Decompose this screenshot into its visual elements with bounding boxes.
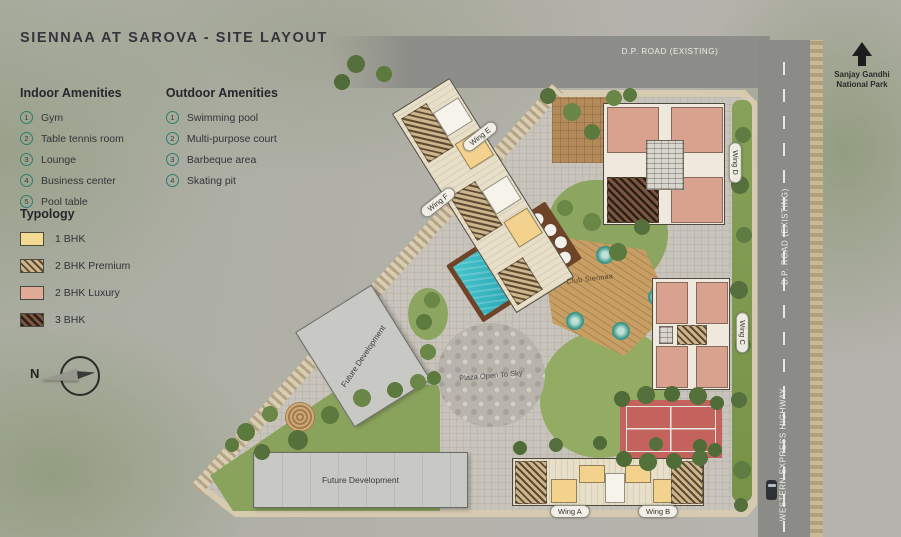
swatch-2bhk-premium <box>20 259 44 273</box>
list-item: 2Table tennis room <box>20 132 124 145</box>
amenities-legend: Indoor Amenities 1Gym 2Table tennis room… <box>20 86 278 216</box>
court-lines <box>626 406 716 452</box>
list-item: 1Swimming pool <box>166 111 278 124</box>
list-item: 2Multi-purpose court <box>166 132 278 145</box>
wing-d-label: Wing D <box>729 142 742 183</box>
number-badge: 1 <box>166 111 179 124</box>
unit-2bhk-luxury <box>696 282 728 324</box>
typology-row: 2 BHK Premium <box>20 259 130 273</box>
indoor-amenities: Indoor Amenities 1Gym 2Table tennis room… <box>20 86 124 216</box>
multi-purpose-court <box>620 400 722 458</box>
swatch-3bhk <box>20 313 44 327</box>
north-arrow-stem <box>858 56 866 66</box>
amenity-label: Pool table <box>41 196 88 208</box>
list-item: 3Lounge <box>20 153 124 166</box>
amenity-label: Table tennis room <box>41 133 124 145</box>
unit-2bhk-premium <box>677 325 707 345</box>
indoor-amenities-list: 1Gym 2Table tennis room 3Lounge 4Busines… <box>20 111 124 208</box>
umbrella-icon <box>596 246 614 264</box>
compass-needle-east <box>77 369 96 379</box>
typology-label: 3 BHK <box>55 314 85 326</box>
compass-needle-icon <box>24 344 117 413</box>
amenity-label: Gym <box>41 112 63 124</box>
outdoor-amenities-heading: Outdoor Amenities <box>166 86 278 100</box>
north-arrow-icon <box>852 42 872 56</box>
skating-pit-icon <box>285 402 315 432</box>
page-title: SIENNAA AT SAROVA - SITE LAYOUT <box>20 30 328 46</box>
road-verge <box>810 40 823 537</box>
building-wing-c <box>652 278 730 390</box>
landmark-label: Sanjay Gandhi National Park <box>824 70 900 90</box>
wing-c-label: Wing C <box>736 312 749 353</box>
typology-row: 1 BHK <box>20 232 130 246</box>
building-core <box>659 326 673 344</box>
typology-heading: Typology <box>20 207 130 221</box>
plaza-label: Plaza Open To Sky <box>459 368 523 383</box>
unit-2bhk-premium <box>671 461 703 504</box>
typology-row: 2 BHK Luxury <box>20 286 130 300</box>
unit-2bhk-luxury <box>656 346 688 388</box>
amenity-label: Lounge <box>41 154 76 166</box>
typology-label: 2 BHK Premium <box>55 260 130 272</box>
number-badge: 3 <box>166 153 179 166</box>
swatch-2bhk-luxury <box>20 286 44 300</box>
list-item: 4Business center <box>20 174 124 187</box>
list-item: 4Skating pit <box>166 174 278 187</box>
number-badge: 1 <box>20 111 33 124</box>
amenity-label: Multi-purpose court <box>187 133 277 145</box>
compass-needle-west <box>39 369 78 386</box>
wing-b-label: Wing B <box>638 505 678 518</box>
typology-legend: Typology 1 BHK 2 BHK Premium 2 BHK Luxur… <box>20 207 130 340</box>
road-label-dp-top: D.P. ROAD (EXISTING) <box>595 47 745 56</box>
typology-label: 1 BHK <box>55 233 85 245</box>
umbrella-icon <box>612 322 630 340</box>
outdoor-amenities: Outdoor Amenities 1Swimming pool 2Multi-… <box>166 86 278 216</box>
car-icon <box>766 480 777 500</box>
number-badge: 2 <box>20 132 33 145</box>
number-badge: 4 <box>20 174 33 187</box>
building-wing-d <box>603 103 725 225</box>
number-badge: 2 <box>166 132 179 145</box>
unit-1bhk <box>551 479 577 503</box>
plaza-open-to-sky: Plaza Open To Sky <box>437 323 545 427</box>
landmark-sanjay-gandhi-park: Sanjay Gandhi National Park <box>824 42 900 90</box>
building-core <box>646 140 684 190</box>
green-patch-pool-west <box>408 288 448 340</box>
number-badge: 3 <box>20 153 33 166</box>
list-item: 3Barbeque area <box>166 153 278 166</box>
typology-label: 2 BHK Luxury <box>55 287 120 299</box>
umbrella-icon <box>566 312 584 330</box>
wing-a-label: Wing A <box>550 505 590 518</box>
amenity-label: Barbeque area <box>187 154 256 166</box>
unit-core <box>605 473 625 503</box>
unit-2bhk-luxury <box>656 282 688 324</box>
road-dp-top <box>330 36 770 88</box>
road-label-dp-right: D.P. ROAD (EXISTING) <box>781 157 790 317</box>
outdoor-amenities-list: 1Swimming pool 2Multi-purpose court 3Bar… <box>166 111 278 187</box>
swatch-1bhk <box>20 232 44 246</box>
typology-row: 3 BHK <box>20 313 130 327</box>
future-development-block-south: Future Development <box>253 452 468 508</box>
amenity-label: Business center <box>41 175 116 187</box>
number-badge: 4 <box>166 174 179 187</box>
road-label-western-express-highway: WESTERN EXPRESS HIGHWAY <box>779 375 788 535</box>
unit-1bhk <box>625 465 651 483</box>
site-layout-page: SIENNAA AT SAROVA - SITE LAYOUT Indoor A… <box>0 0 901 537</box>
amenity-label: Swimming pool <box>187 112 258 124</box>
unit-1bhk <box>579 465 605 483</box>
unit-2bhk-luxury <box>696 346 728 388</box>
future-development-label: Future Development <box>322 475 399 485</box>
indoor-amenities-heading: Indoor Amenities <box>20 86 124 100</box>
future-development-label: Future Development <box>339 323 387 388</box>
list-item: 1Gym <box>20 111 124 124</box>
compass: N <box>28 350 114 408</box>
building-wing-a-b <box>512 458 704 506</box>
amenity-label: Skating pit <box>187 175 236 187</box>
unit-2bhk-premium <box>515 461 547 504</box>
